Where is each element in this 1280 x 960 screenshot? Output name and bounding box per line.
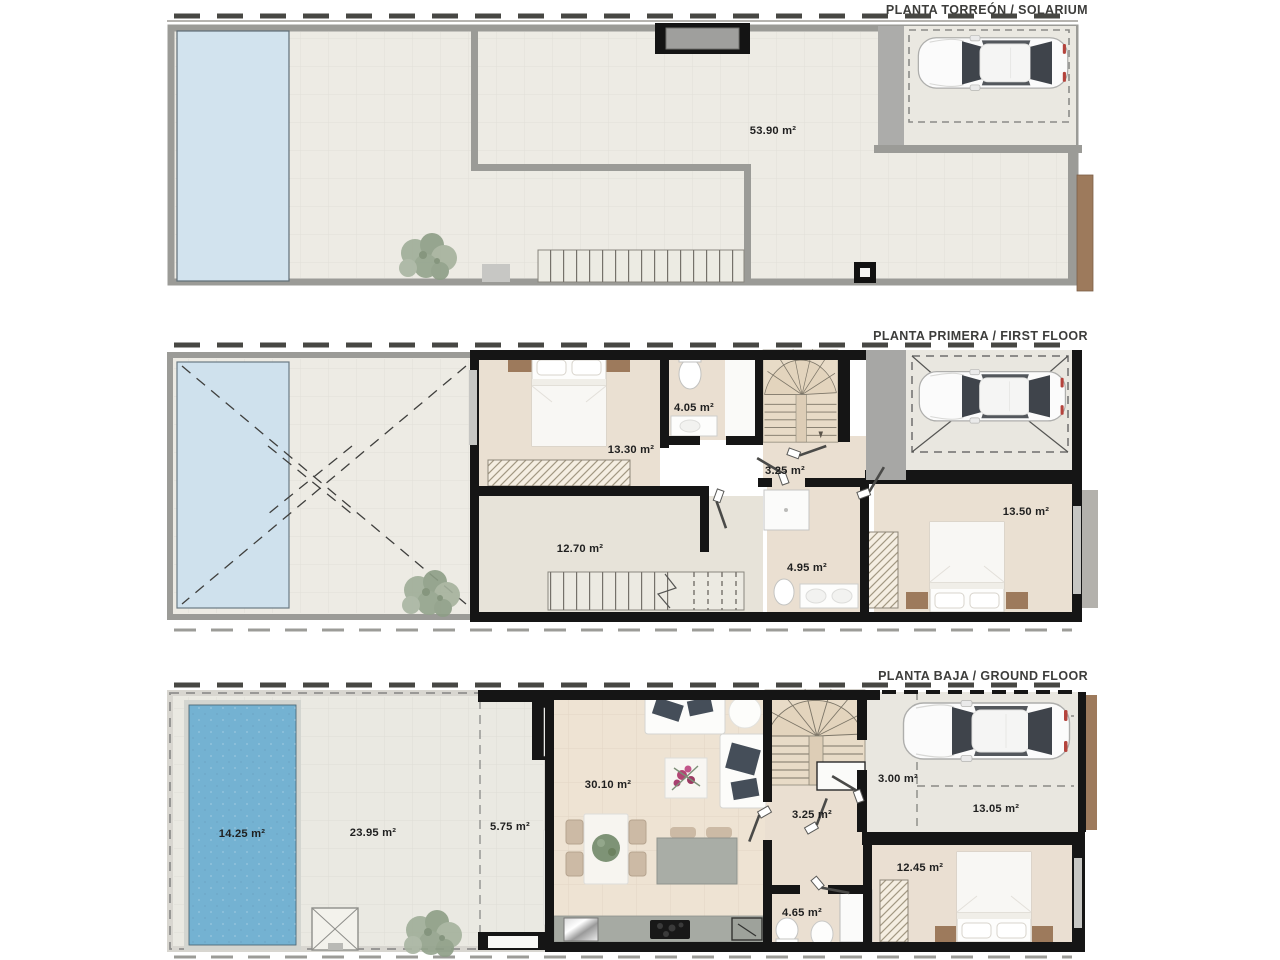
round-rug	[729, 696, 761, 728]
wall	[1068, 153, 1076, 283]
toilet	[679, 359, 701, 389]
floor-plan-sheet: PLANTA TORREÓN / SOLARIUM 53.90 m² PLANT…	[0, 0, 1280, 960]
car-icon	[918, 35, 1067, 90]
stair-treads	[538, 250, 744, 282]
wall	[744, 164, 751, 284]
bed-icon	[532, 356, 606, 446]
area-label-pool: 14.25 m²	[219, 828, 265, 840]
wardrobe	[880, 880, 908, 942]
window	[469, 370, 477, 445]
skylight	[666, 28, 739, 49]
bed-icon	[957, 852, 1031, 942]
pool-below	[177, 362, 289, 608]
area-label-ensuite: 4.05 m²	[674, 402, 714, 414]
kitchen-counter	[554, 916, 764, 942]
wall	[874, 145, 1082, 153]
area-label-garage: 13.05 m²	[973, 803, 1019, 815]
bed-icon	[930, 522, 1004, 612]
wall	[471, 164, 751, 171]
window	[1074, 858, 1082, 928]
shower-strip	[725, 353, 755, 436]
staircase	[763, 349, 838, 442]
balcony-strip	[1082, 490, 1098, 608]
porch-door	[488, 936, 538, 948]
mat	[482, 264, 510, 282]
wardrobe	[488, 460, 630, 486]
nightstand	[1006, 592, 1028, 609]
stairs-down	[548, 572, 744, 610]
neighbor-strip	[1086, 695, 1097, 830]
car-icon	[904, 701, 1070, 762]
area-label-garden: 23.95 m²	[350, 827, 396, 839]
neighbor-strip	[1077, 175, 1093, 291]
sink	[732, 918, 762, 940]
nightstand	[906, 592, 928, 609]
coffee-table	[665, 758, 707, 798]
fridge	[564, 918, 598, 941]
concrete-strip	[878, 26, 904, 153]
area-label-bathroom: 4.65 m²	[782, 907, 822, 919]
pool-cover	[177, 31, 289, 281]
area-label-porch: 5.75 m²	[490, 821, 530, 833]
area-label-bedroom: 12.45 m²	[897, 862, 943, 874]
area-label-bedroom2: 13.50 m²	[1003, 506, 1049, 518]
nightstand	[1032, 926, 1053, 942]
area-label-solarium: 53.90 m²	[750, 125, 796, 137]
wall	[478, 690, 548, 702]
area-label-landing-room: 12.70 m²	[557, 543, 603, 555]
solarium-floor-plan: 53.90 m²	[160, 10, 1120, 300]
pergola	[312, 908, 358, 950]
nightstand	[935, 926, 956, 942]
area-label-entry: 3.00 m²	[878, 773, 918, 785]
first-floor-plan: 13.30 m² 4.05 m² 3.25 m² 12.70 m² 4.95 m…	[160, 340, 1120, 640]
wall	[471, 25, 478, 171]
area-label-hall: 3.25 m²	[792, 809, 832, 821]
hall-floor	[765, 785, 872, 892]
concrete-pillar	[866, 350, 906, 480]
toilet	[774, 579, 794, 605]
area-label-hall: 3.25 m²	[765, 465, 805, 477]
car-icon	[919, 369, 1065, 423]
wardrobe	[868, 532, 898, 608]
ground-floor-plan: 14.25 m² 23.95 m² 5.75 m² 30.10 m² 3.25 …	[160, 680, 1120, 960]
area-label-living: 30.10 m²	[585, 779, 631, 791]
window	[1073, 506, 1081, 594]
area-label-bedroom-main: 13.30 m²	[608, 444, 654, 456]
toilet	[776, 918, 798, 942]
area-label-bathroom: 4.95 m²	[787, 562, 827, 574]
